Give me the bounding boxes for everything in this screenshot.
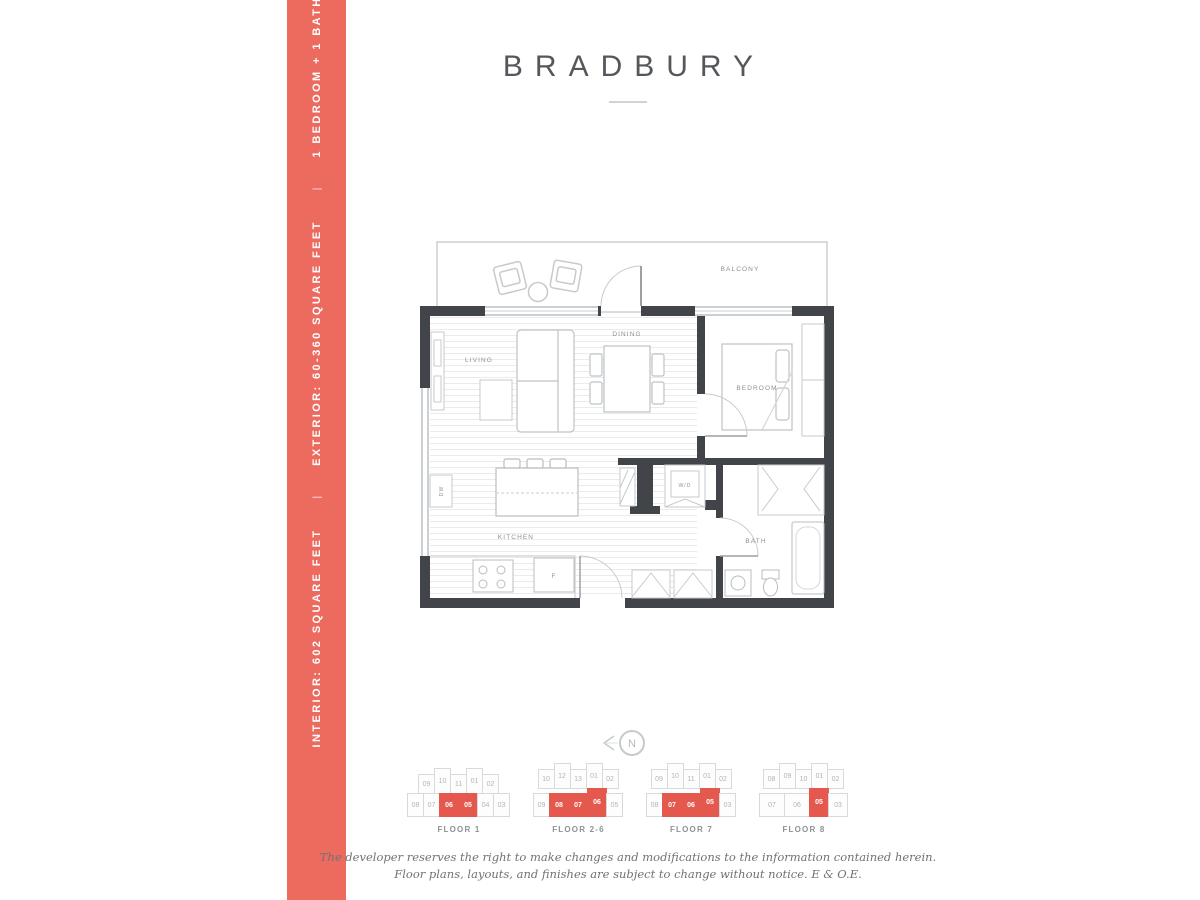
keyplan-row: 0809100102 (764, 763, 844, 789)
kitchen-island-icon (496, 459, 578, 516)
keyplan-unit: 10 (795, 769, 812, 789)
compass: N (596, 726, 652, 765)
spec-exterior: EXTERIOR: 60-360 SQUARE FEET (311, 220, 323, 466)
room-label-dining: DINING (612, 331, 641, 338)
keyplan-unit: 04 (477, 793, 494, 817)
keyplan-unit-highlighted: 06 (439, 793, 459, 817)
header: BRADBURY (346, 50, 910, 103)
sidebar-specs: INTERIOR: 602 SQUARE FEET | EXTERIOR: 60… (311, 0, 323, 747)
fridge-icon: F (534, 558, 574, 592)
keyplan-unit: 01 (466, 768, 483, 794)
keyplan-unit: 10 (667, 763, 684, 789)
room-label-balcony: BALCONY (721, 266, 760, 273)
disclaimer: The developer reserves the right to make… (270, 849, 986, 882)
keyplan-unit-highlighted: 07 (568, 793, 588, 817)
keyplan-unit: 11 (450, 774, 467, 794)
keyplan-unit: 09 (651, 769, 668, 789)
room-label-bath: BATH (745, 538, 766, 545)
keyplan-unit: 07 (423, 793, 440, 817)
keyplan-unit-highlighted: 08 (549, 793, 569, 817)
keyplan-unit: 02 (602, 769, 619, 789)
keyplan-unit: 09 (533, 793, 550, 817)
keyplan-row: 0910110102 (419, 768, 499, 794)
keyplan-row: 080706050403 (408, 793, 510, 817)
keyplan-unit: 12 (554, 763, 571, 789)
keyplan-unit: 02 (482, 774, 499, 794)
keyplan-floor-4: 080910010207060503FLOOR 8 (760, 763, 848, 834)
spec-bed-bath: 1 BEDROOM + 1 BATHROOM (311, 0, 323, 158)
appliance-label-fridge: F (552, 574, 557, 580)
spec-interior: INTERIOR: 602 SQUARE FEET (311, 529, 323, 748)
utility-hatch (620, 468, 635, 506)
keyplan-label: FLOOR 1 (437, 825, 480, 834)
brochure-page: INTERIOR: 602 SQUARE FEET | EXTERIOR: 60… (0, 0, 1200, 900)
bathroom-sink-icon (725, 570, 751, 596)
keyplan-floor-2: 10121301020908070605FLOOR 2-6 (534, 763, 623, 834)
appliance-label-dw: DW (439, 486, 445, 497)
keyplan-unit-highlighted: 06 (587, 788, 607, 817)
washer-dryer-icon: W/D (665, 465, 705, 507)
keyplan-floor-1: 0910110102080706050403FLOOR 1 (408, 768, 510, 834)
keyplan-unit-highlighted: 07 (662, 793, 682, 817)
keyplan-row: 1012130102 (539, 763, 619, 789)
sofa-icon (517, 330, 574, 432)
keyplan-unit: 08 (407, 793, 424, 817)
keyplan-unit: 11 (683, 769, 700, 789)
keyplan-row: 0908070605 (534, 788, 623, 817)
keyplan-unit-highlighted: 06 (681, 793, 701, 817)
keyplan-unit: 06 (784, 793, 810, 817)
spec-separator: | (311, 188, 322, 191)
keyplan-unit: 01 (811, 763, 828, 789)
keyplan-label: FLOOR 2-6 (552, 825, 605, 834)
keyplans-row: 0910110102080706050403FLOOR 110121301020… (340, 763, 916, 834)
keyplan-row: 07060503 (760, 788, 848, 817)
coffee-table-icon (480, 380, 512, 420)
keyplan-unit-highlighted: 05 (700, 788, 720, 817)
keyplan-unit: 10 (434, 768, 451, 794)
page-title: BRADBURY (346, 50, 910, 84)
balcony-table-icon (529, 283, 548, 302)
keyplan-label: FLOOR 8 (782, 825, 825, 834)
floor-plan-drawing: BALCONY (420, 240, 834, 612)
room-label-kitchen: KITCHEN (498, 534, 534, 541)
keyplan-unit: 02 (715, 769, 732, 789)
keyplan-unit: 09 (418, 774, 435, 794)
keyplan-unit: 03 (719, 793, 736, 817)
right-closet-icon (758, 465, 824, 515)
keyplan-unit: 02 (827, 769, 844, 789)
window-bedroom (692, 306, 795, 316)
media-console-icon (431, 332, 444, 410)
north-arrow-icon: N (596, 726, 652, 760)
compass-label: N (628, 738, 636, 750)
bedroom-closet-icon (802, 324, 824, 436)
disclaimer-line-2: Floor plans, layouts, and finishes are s… (270, 866, 986, 883)
keyplan-unit: 08 (646, 793, 663, 817)
disclaimer-line-1: The developer reserves the right to make… (270, 849, 986, 866)
spec-separator: | (311, 496, 322, 499)
window-left-wall (420, 388, 430, 556)
bath-door-arc (720, 518, 758, 556)
keyplan-row: 0807060503 (647, 788, 736, 817)
sidebar-stripe: INTERIOR: 602 SQUARE FEET | EXTERIOR: 60… (287, 0, 346, 900)
title-divider (609, 101, 647, 103)
toilet-icon (762, 570, 779, 596)
keyplan-unit: 10 (538, 769, 555, 789)
keyplan-unit: 09 (779, 763, 796, 789)
keyplan-unit: 13 (570, 769, 587, 789)
bathtub-icon (792, 522, 824, 594)
keyplan-unit: 08 (763, 769, 780, 789)
keyplan-unit: 05 (606, 793, 623, 817)
keyplan-row: 0910110102 (652, 763, 732, 789)
room-label-living: LIVING (465, 357, 493, 364)
floor-plan: BALCONY (420, 240, 834, 612)
keyplan-unit: 07 (759, 793, 785, 817)
keyplan-unit: 01 (586, 763, 603, 789)
keyplan-unit-highlighted: 05 (458, 793, 478, 817)
keyplan-unit: 01 (699, 763, 716, 789)
dishwasher-icon: DW (430, 475, 452, 507)
keyplan-unit: 03 (493, 793, 510, 817)
keyplan-unit: 03 (828, 793, 848, 817)
appliance-label-wd: W/D (678, 483, 691, 489)
keyplan-floor-3: 09101101020807060503FLOOR 7 (647, 763, 736, 834)
keyplan-unit-highlighted: 05 (809, 788, 829, 817)
window-living (482, 306, 601, 316)
room-label-bedroom: BEDROOM (736, 385, 777, 392)
keyplan-label: FLOOR 7 (670, 825, 713, 834)
stove-icon (473, 560, 513, 592)
